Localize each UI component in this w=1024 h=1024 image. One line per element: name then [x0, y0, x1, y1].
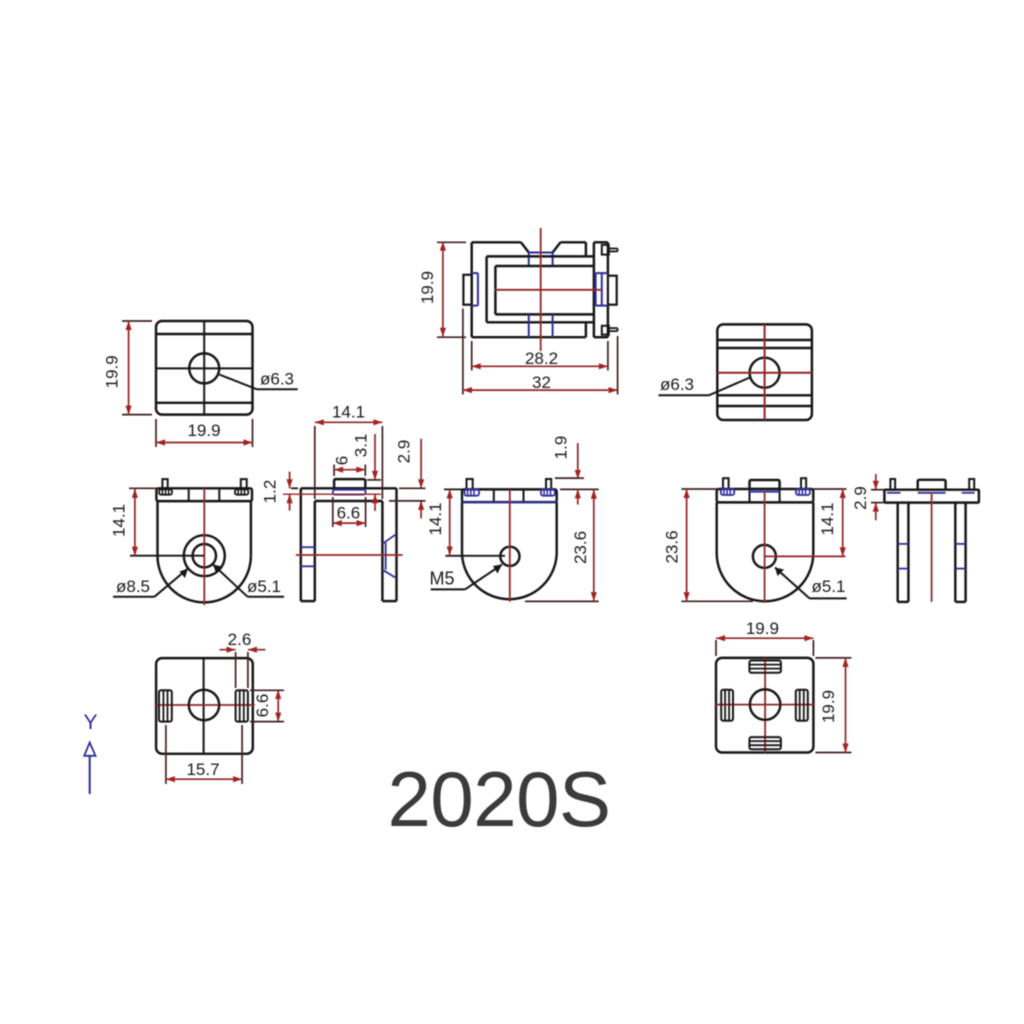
- svg-text:19.9: 19.9: [103, 355, 122, 388]
- svg-text:ø5.1: ø5.1: [811, 577, 845, 596]
- svg-text:19.9: 19.9: [819, 690, 838, 723]
- svg-text:23.6: 23.6: [663, 530, 682, 563]
- svg-text:14.1: 14.1: [818, 502, 837, 535]
- svg-text:ø8.5: ø8.5: [116, 577, 150, 596]
- svg-text:ø6.3: ø6.3: [660, 375, 694, 394]
- svg-text:1.2: 1.2: [261, 480, 280, 504]
- svg-text:32: 32: [532, 373, 551, 392]
- svg-text:ø6.3: ø6.3: [260, 370, 294, 389]
- svg-text:2.9: 2.9: [395, 440, 414, 464]
- svg-text:14.1: 14.1: [426, 502, 445, 535]
- svg-text:2.6: 2.6: [228, 630, 252, 649]
- svg-text:2020S: 2020S: [387, 755, 610, 843]
- svg-text:3.1: 3.1: [351, 434, 370, 458]
- svg-text:ø5.1: ø5.1: [247, 577, 281, 596]
- svg-text:6.6: 6.6: [253, 694, 272, 718]
- svg-text:19.9: 19.9: [418, 271, 437, 304]
- svg-text:6: 6: [333, 456, 352, 465]
- svg-text:M5: M5: [429, 569, 454, 589]
- svg-text:1.9: 1.9: [552, 436, 571, 460]
- svg-text:6.6: 6.6: [337, 504, 361, 523]
- svg-text:23.6: 23.6: [571, 531, 590, 564]
- svg-text:19.9: 19.9: [187, 421, 220, 440]
- svg-text:14.1: 14.1: [332, 403, 365, 422]
- svg-text:15.7: 15.7: [186, 760, 219, 779]
- svg-text:19.9: 19.9: [746, 619, 779, 638]
- svg-text:2.9: 2.9: [851, 486, 870, 510]
- svg-text:Y: Y: [83, 711, 97, 734]
- svg-text:14.1: 14.1: [110, 504, 129, 537]
- svg-text:28.2: 28.2: [525, 349, 558, 368]
